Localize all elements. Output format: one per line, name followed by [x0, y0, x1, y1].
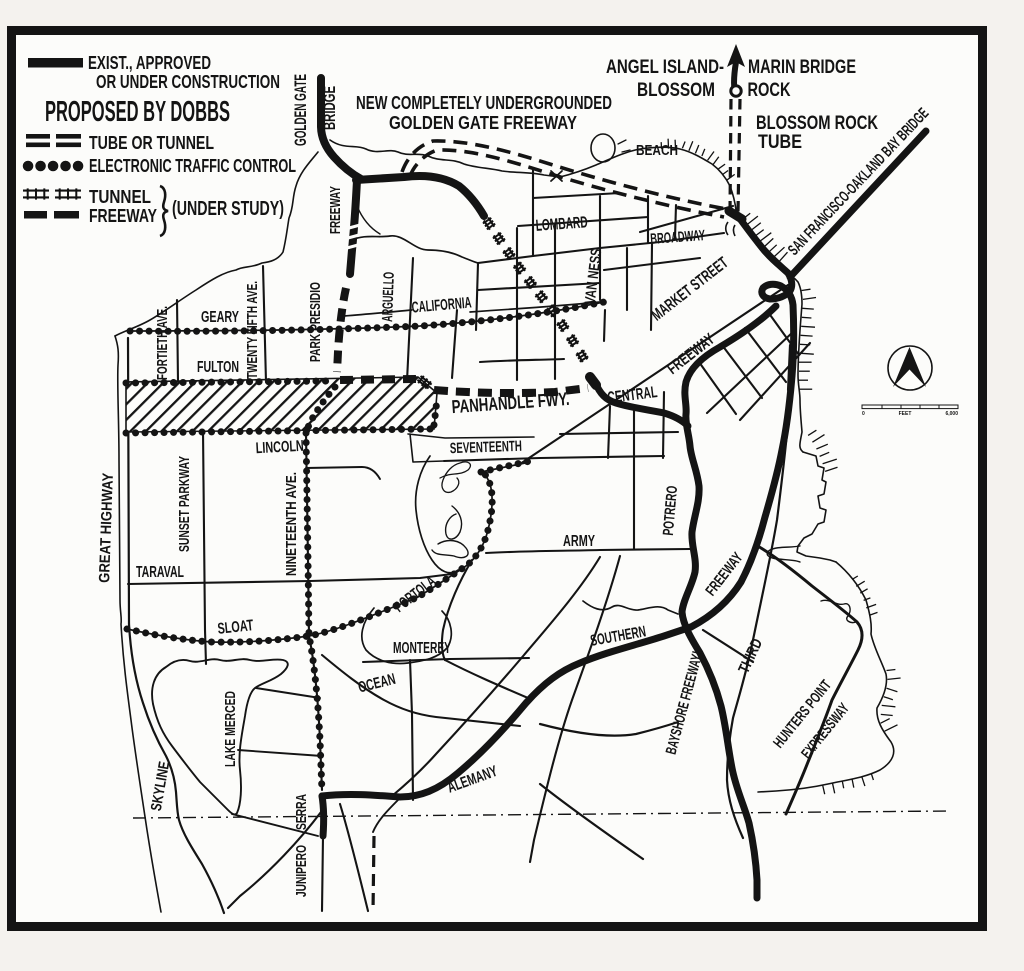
svg-text:FREEWAY: FREEWAY [327, 186, 344, 234]
svg-text:PARK PRESIDIO: PARK PRESIDIO [307, 282, 324, 362]
svg-text:TUBE: TUBE [758, 132, 802, 153]
svg-text:BLOSSOM: BLOSSOM [637, 80, 715, 101]
svg-text:NEW COMPLETELY UNDERGROUNDED: NEW COMPLETELY UNDERGROUNDED [356, 92, 612, 113]
svg-text:GOLDEN GATE FREEWAY: GOLDEN GATE FREEWAY [389, 112, 577, 133]
svg-text:6,000: 6,000 [945, 411, 958, 417]
svg-text:LAKE MERCED: LAKE MERCED [222, 691, 239, 767]
svg-text:ARGUELLO: ARGUELLO [379, 271, 398, 322]
svg-text:TUNNEL: TUNNEL [89, 186, 151, 207]
svg-text:LINCOLN: LINCOLN [255, 438, 304, 457]
svg-text:LOMBARD: LOMBARD [535, 213, 588, 235]
svg-text:ARMY: ARMY [563, 533, 595, 550]
svg-text:BLOSSOM ROCK: BLOSSOM ROCK [756, 113, 878, 134]
svg-text:SUNSET PARKWAY: SUNSET PARKWAY [176, 456, 193, 552]
svg-text:MARIN BRIDGE: MARIN BRIDGE [748, 57, 856, 78]
svg-text:BEACH: BEACH [636, 143, 678, 159]
svg-text:(UNDER STUDY): (UNDER STUDY) [172, 198, 284, 220]
svg-text:ELECTRONIC TRAFFIC CONTROL: ELECTRONIC TRAFFIC CONTROL [89, 155, 296, 176]
svg-text:FULTON: FULTON [197, 359, 239, 376]
svg-text:SERRA: SERRA [293, 794, 310, 830]
svg-text:TUBE OR TUNNEL: TUBE OR TUNNEL [89, 132, 214, 153]
svg-text:FORTIETH AVE.: FORTIETH AVE. [154, 306, 171, 380]
svg-text:SEVENTEENTH: SEVENTEENTH [450, 438, 523, 458]
svg-text:GOLDEN GATE: GOLDEN GATE [292, 74, 310, 146]
svg-text:EXIST., APPROVED: EXIST., APPROVED [88, 52, 211, 73]
svg-text:ROCK: ROCK [748, 80, 791, 101]
svg-text:FREEWAY: FREEWAY [89, 205, 157, 226]
svg-text:FEET: FEET [899, 411, 912, 417]
svg-text:MONTEREY: MONTEREY [393, 640, 451, 657]
svg-text:PROPOSED BY DOBBS: PROPOSED BY DOBBS [45, 96, 230, 128]
svg-text:NINETEENTH AVE.: NINETEENTH AVE. [283, 472, 300, 576]
svg-text:ANGEL ISLAND-: ANGEL ISLAND- [606, 57, 724, 78]
svg-text:BRIDGE: BRIDGE [321, 86, 339, 130]
svg-text:GEARY: GEARY [201, 309, 239, 326]
svg-text:0: 0 [862, 411, 865, 417]
svg-text:TWENTY FIFTH AVE.: TWENTY FIFTH AVE. [244, 281, 261, 379]
svg-text:JUNIPERO: JUNIPERO [293, 845, 310, 897]
svg-text:OR UNDER CONSTRUCTION: OR UNDER CONSTRUCTION [96, 71, 280, 92]
svg-text:TARAVAL: TARAVAL [136, 564, 184, 581]
